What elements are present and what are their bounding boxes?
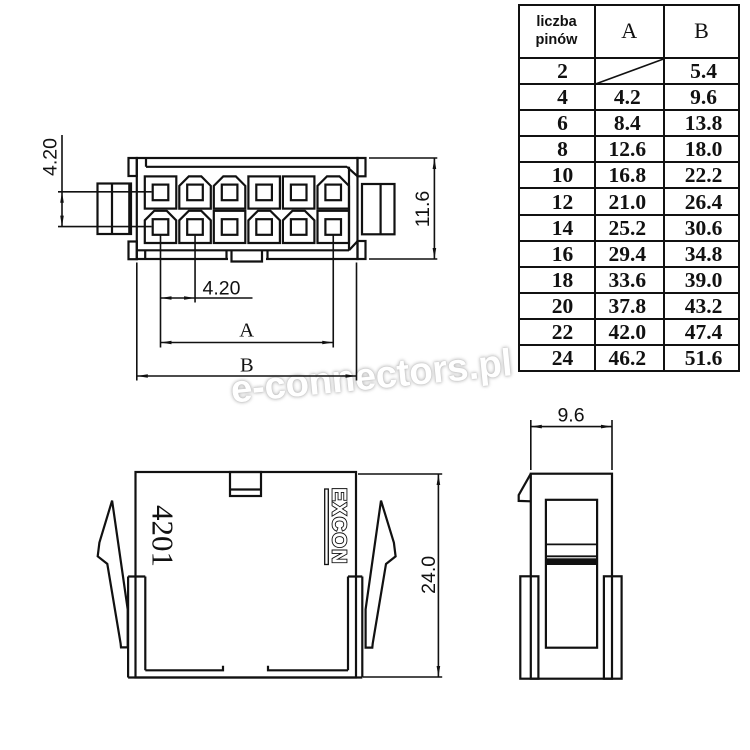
svg-text:EXCON: EXCON bbox=[328, 488, 350, 565]
svg-text:24.0: 24.0 bbox=[418, 556, 440, 594]
svg-text:4.20: 4.20 bbox=[40, 138, 62, 176]
svg-text:9.6: 9.6 bbox=[557, 405, 584, 427]
svg-text:A: A bbox=[239, 320, 254, 342]
svg-text:B: B bbox=[240, 354, 254, 376]
svg-text:4.20: 4.20 bbox=[203, 277, 241, 299]
svg-text:11.6: 11.6 bbox=[412, 191, 434, 228]
